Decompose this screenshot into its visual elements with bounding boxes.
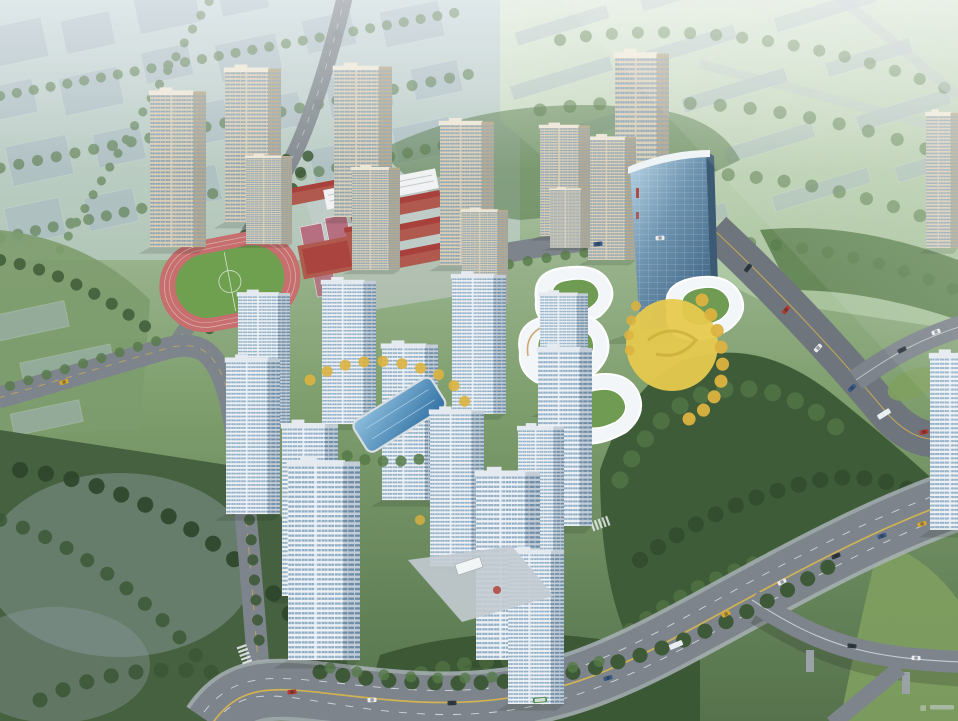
rendering-canvas: ▦ — [0, 0, 958, 721]
watermark-logo-icon: ▦ — [920, 704, 927, 712]
golden-plaza — [626, 299, 718, 391]
aerial-rendering: ▦ — [0, 0, 958, 721]
sculpture — [493, 586, 501, 594]
